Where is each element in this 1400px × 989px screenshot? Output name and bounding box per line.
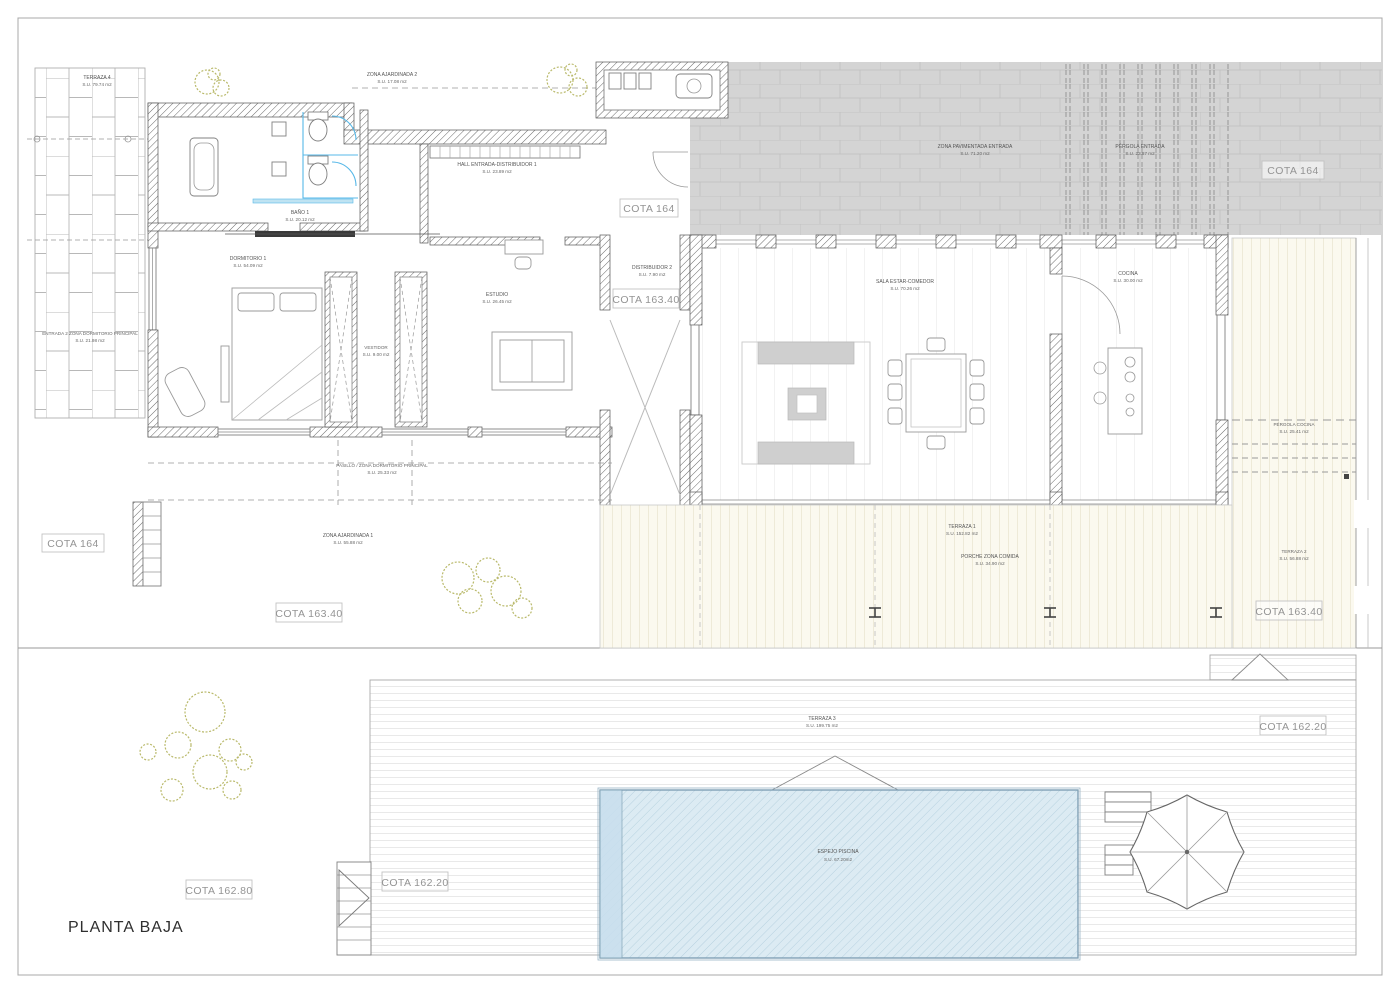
bottom-section: TERRAZA 3 S.U. 199.75 m2 COTA 162.20 COT… xyxy=(68,654,1356,960)
room-label-bano1: BAÑO 1 xyxy=(291,209,310,216)
room-area-piscina: S.U. 67.20m2 xyxy=(824,857,853,862)
plant-icon xyxy=(442,558,532,618)
room-label-terraza2: TERRAZA 2 xyxy=(1281,549,1306,554)
living-area: SALA ESTAR-COMEDOR S.U. 70.26 m2 COCINA … xyxy=(690,235,1228,505)
plant-icon xyxy=(547,64,587,96)
utility-room xyxy=(596,62,728,118)
estudio-room: ESTUDIO S.U. 26.45 m2 xyxy=(482,240,572,390)
room-area-dormitorio1: S.U. 54.09 m2 xyxy=(233,263,263,268)
room-area-hall: S.U. 23.89 m2 xyxy=(482,169,512,174)
cota-badge: COTA 162.20 xyxy=(381,872,448,891)
svg-text:COTA 163.40: COTA 163.40 xyxy=(612,294,679,306)
room-area-porche: S.U. 34.90 m2 xyxy=(975,561,1005,566)
room-label-estudio: ESTUDIO xyxy=(486,292,508,298)
dormitorio1-room: DORMITORIO 1 S.U. 54.09 m2 xyxy=(162,256,322,420)
svg-text:COTA 162.20: COTA 162.20 xyxy=(1259,721,1326,733)
room-area-ajardinada2: S.U. 17.08 m2 xyxy=(377,79,407,84)
svg-text:COTA 163.40: COTA 163.40 xyxy=(1255,606,1322,618)
pasillo-area: PASILLO / ZONA DORMITORIO PRINCIPAL S.U.… xyxy=(133,440,612,586)
room-label-piscina: ESPEJO PISCINA xyxy=(817,849,859,855)
cota-badge: COTA 162.20 xyxy=(1259,716,1326,735)
terraza1-area: TERRAZA 1 S.U. 152.82 m2 PORCHE ZONA COM… xyxy=(600,505,1232,648)
room-label-vestidor: VESTIDOR xyxy=(364,345,388,350)
room-area-pergola-cocina: S.U. 25.41 m2 xyxy=(1279,429,1309,434)
room-area-bano1: S.U. 20.12 m2 xyxy=(285,217,315,222)
room-area-pavimentada: S.U. 71.20 m2 xyxy=(960,151,990,156)
cota-badge: COTA 163.40 xyxy=(275,603,342,622)
room-area-entrada2: S.U. 21.98 m2 xyxy=(75,338,105,343)
room-label-sala: SALA ESTAR-COMEDOR xyxy=(876,279,934,285)
vestidor-room: VESTIDOR S.U. 9.00 m2 xyxy=(325,272,427,427)
stairs-icon xyxy=(337,862,371,955)
svg-text:COTA 162.80: COTA 162.80 xyxy=(185,885,252,897)
hall-area: HALL ENTRADA-DISTRIBUIDOR 1 S.U. 23.89 m… xyxy=(457,162,678,217)
page-title: PLANTA BAJA xyxy=(68,919,184,936)
svg-text:COTA 162.20: COTA 162.20 xyxy=(381,877,448,889)
floor-plan-page: TERRAZA 4 S.U. 79.74 m2 ENTRADA 2 ZONA D… xyxy=(0,0,1400,989)
cota-badge: COTA 164 xyxy=(42,534,104,552)
room-area-pasillo: S.U. 25.33 m2 xyxy=(367,470,397,475)
svg-text:COTA 164: COTA 164 xyxy=(47,538,98,550)
vanity-counter xyxy=(253,199,353,203)
sink-icon xyxy=(676,74,712,98)
terraza4-area: TERRAZA 4 S.U. 79.74 m2 ENTRADA 2 ZONA D… xyxy=(27,68,153,418)
distribuidor2-area: DISTRIBUIDOR 2 S.U. 7.90 m2 COTA 163.40 xyxy=(600,235,690,505)
svg-text:COTA 164: COTA 164 xyxy=(623,203,674,215)
room-area-terraza4: S.U. 79.74 m2 xyxy=(82,82,112,87)
desk-icon xyxy=(505,240,543,254)
room-label-terraza4: TERRAZA 4 xyxy=(83,75,110,81)
svg-text:COTA 163.40: COTA 163.40 xyxy=(275,608,342,620)
room-label-pasillo: PASILLO / ZONA DORMITORIO PRINCIPAL xyxy=(336,463,428,468)
door-arc xyxy=(653,152,688,187)
room-label-cocina: COCINA xyxy=(1118,271,1138,277)
svg-text:COTA 164: COTA 164 xyxy=(1267,165,1318,177)
room-area-ajardinada1: S.U. 55.88 m2 xyxy=(333,540,363,545)
room-label-hall: HALL ENTRADA-DISTRIBUIDOR 1 xyxy=(457,162,536,168)
room-area-sala: S.U. 70.26 m2 xyxy=(890,286,920,291)
room-label-dormitorio1: DORMITORIO 1 xyxy=(230,256,267,262)
zona-ajardinada1-area: ZONA AJARDINADA 1 S.U. 55.88 m2 COTA 163… xyxy=(42,533,532,622)
room-area-terraza3: S.U. 199.75 m2 xyxy=(806,723,838,728)
closet-strip xyxy=(430,146,580,158)
room-label-entrada2: ENTRADA 2 ZONA DORMITORIO PRINCIPAL xyxy=(42,331,138,336)
parasol-icon xyxy=(1130,795,1244,909)
plant-icon xyxy=(195,68,229,96)
room-area-terraza2: S.U. 56.88 m2 xyxy=(1279,556,1309,561)
room-area-cocina: S.U. 30.00 m2 xyxy=(1113,278,1143,283)
room-area-estudio: S.U. 26.45 m2 xyxy=(482,299,512,304)
room-label-distribuidor2: DISTRIBUIDOR 2 xyxy=(632,265,672,271)
paved-entrance-area: ZONA PAVIMENTADA ENTRADA S.U. 71.20 m2 P… xyxy=(690,62,1382,235)
room-label-terraza3: TERRAZA 3 xyxy=(808,716,835,722)
room-area-terraza1: S.U. 152.82 m2 xyxy=(946,531,978,536)
room-label-ajardinada1: ZONA AJARDINADA 1 xyxy=(323,533,374,539)
room-area-vestidor: S.U. 9.00 m2 xyxy=(363,352,390,357)
cota-badge: COTA 163.40 xyxy=(612,289,679,308)
toilet-icon xyxy=(308,112,328,185)
floor-plan-svg: TERRAZA 4 S.U. 79.74 m2 ENTRADA 2 ZONA D… xyxy=(0,0,1400,989)
terraza2-strip: PÉRGOLA COCINA S.U. 25.41 m2 TERRAZA 2 S… xyxy=(1232,238,1372,648)
chaise-icon xyxy=(162,365,207,420)
stairs-icon xyxy=(133,502,161,586)
cota-badge: COTA 164 xyxy=(1262,161,1324,179)
room-area-pergola-entrada: S.U. 23.87 m2 xyxy=(1125,151,1155,156)
room-label-porche: PORCHE ZONA COMIDA xyxy=(961,554,1019,560)
room-area-distribuidor2: S.U. 7.90 m2 xyxy=(639,272,666,277)
cota-badge: COTA 163.40 xyxy=(1255,601,1322,620)
room-label-pavimentada: ZONA PAVIMENTADA ENTRADA xyxy=(938,144,1013,150)
room-label-pergola-cocina: PÉRGOLA COCINA xyxy=(1273,421,1315,427)
plant-icon xyxy=(140,692,252,801)
cota-badge: COTA 164 xyxy=(620,199,678,217)
pool: ESPEJO PISCINA S.U. 67.20m2 xyxy=(598,788,1080,960)
room-label-terraza1: TERRAZA 1 xyxy=(948,524,975,530)
cota-badge: COTA 162.80 xyxy=(185,880,252,899)
room-label-pergola-entrada: PÉRGOLA ENTRADA xyxy=(1115,143,1165,150)
room-label-ajardinada2: ZONA AJARDINADA 2 xyxy=(367,72,418,78)
